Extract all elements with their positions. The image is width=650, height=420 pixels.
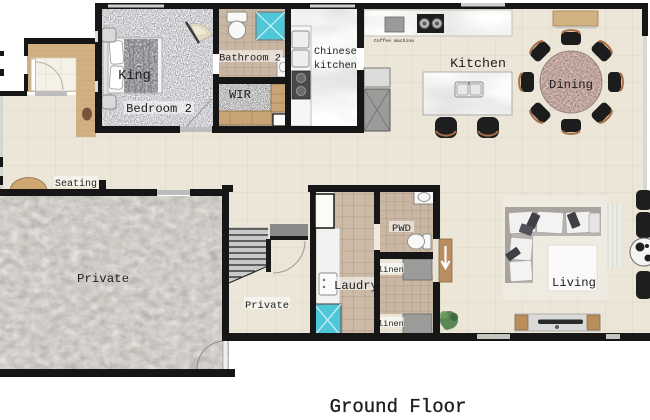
svg-text:Dining: Dining <box>549 78 593 92</box>
svg-text:WIR: WIR <box>229 88 251 102</box>
svg-text:Living: Living <box>552 276 596 290</box>
svg-text:Private: Private <box>245 300 289 312</box>
svg-text:Coffee machine: Coffee machine <box>374 38 414 44</box>
svg-text:Bedroom 2: Bedroom 2 <box>126 102 192 116</box>
svg-text:linen: linen <box>378 265 404 275</box>
svg-text:Bathroom 2: Bathroom 2 <box>219 53 281 65</box>
svg-text:linen: linen <box>378 319 404 329</box>
svg-text:Chinese: Chinese <box>314 46 357 58</box>
svg-text:kitchen: kitchen <box>314 60 357 72</box>
svg-text:Ground Floor: Ground Floor <box>330 396 467 418</box>
svg-text:Private: Private <box>77 272 129 286</box>
svg-text:King: King <box>118 69 150 84</box>
svg-text:Seating: Seating <box>55 178 97 190</box>
svg-text:PWD: PWD <box>392 223 411 235</box>
svg-text:Laudry: Laudry <box>334 279 378 293</box>
svg-text:Kitchen: Kitchen <box>450 56 506 71</box>
